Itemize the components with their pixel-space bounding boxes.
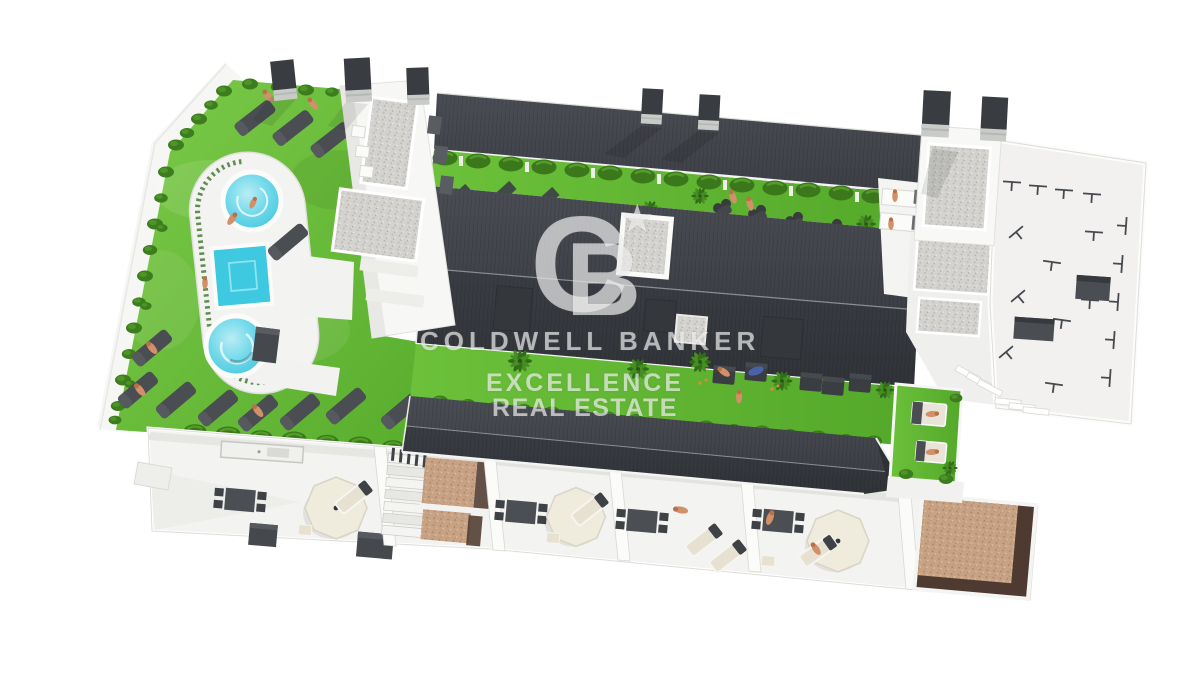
balcony — [879, 213, 914, 232]
planter-box — [351, 125, 365, 138]
planter-box — [355, 145, 369, 158]
chimney — [344, 57, 372, 102]
chimney — [921, 90, 951, 138]
chimney — [641, 88, 664, 124]
gravel-roof — [332, 189, 423, 261]
coldwell-banker-logo: C B ★ — [530, 196, 690, 336]
star-icon: ★ — [622, 202, 652, 236]
deck-walkway-upper — [300, 255, 354, 320]
stool — [546, 532, 560, 543]
stair-tower — [914, 125, 1002, 245]
watermark-brand-line: COLDWELL BANKER — [420, 326, 750, 357]
square-pool — [211, 244, 272, 309]
property-aerial-render: C B ★ COLDWELL BANKER EXCELLENCE REAL ES… — [0, 0, 1200, 675]
planter-box — [359, 165, 373, 178]
stool — [298, 524, 312, 535]
gravel-roof — [917, 298, 981, 336]
gravel-patio — [914, 495, 1036, 599]
private-courtyard — [886, 384, 964, 503]
watermark-tagline-2: REAL ESTATE — [420, 394, 750, 423]
resident — [892, 189, 898, 202]
chimney — [406, 67, 429, 105]
chimney — [698, 94, 721, 130]
resident — [888, 217, 894, 230]
stool — [761, 555, 775, 566]
chimney — [980, 96, 1008, 141]
logo-letter-b: B — [566, 228, 641, 332]
balcony — [881, 189, 916, 208]
chimney — [270, 59, 297, 101]
